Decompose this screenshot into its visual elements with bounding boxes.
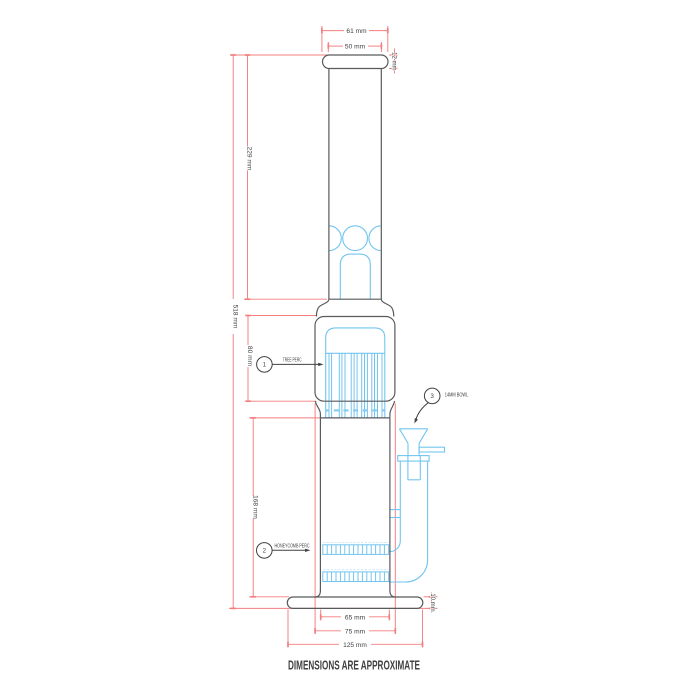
svg-text:12 mm: 12 mm — [390, 52, 396, 70]
svg-text:1: 1 — [263, 363, 267, 369]
svg-text:80 mm: 80 mm — [246, 346, 253, 367]
svg-text:168 mm: 168 mm — [251, 495, 258, 519]
svg-text:50 mm: 50 mm — [345, 44, 366, 51]
svg-text:10 mm: 10 mm — [429, 593, 435, 611]
svg-text:65 mm: 65 mm — [345, 614, 366, 621]
svg-text:2: 2 — [263, 549, 267, 555]
svg-text:518 mm: 518 mm — [231, 305, 238, 329]
svg-text:DIMENSIONS ARE APPROXIMATE: DIMENSIONS ARE APPROXIMATE — [288, 658, 420, 673]
svg-text:229 mm: 229 mm — [246, 147, 253, 171]
svg-text:75 mm: 75 mm — [345, 628, 366, 635]
svg-text:125 mm: 125 mm — [343, 642, 367, 649]
svg-text:TREE PERC: TREE PERC — [283, 358, 302, 364]
svg-text:61 mm: 61 mm — [346, 28, 367, 35]
svg-text:3: 3 — [431, 394, 435, 400]
svg-text:HONEYCOMB PERC: HONEYCOMB PERC — [275, 544, 310, 550]
svg-text:14MM BOWL: 14MM BOWL — [445, 393, 469, 399]
